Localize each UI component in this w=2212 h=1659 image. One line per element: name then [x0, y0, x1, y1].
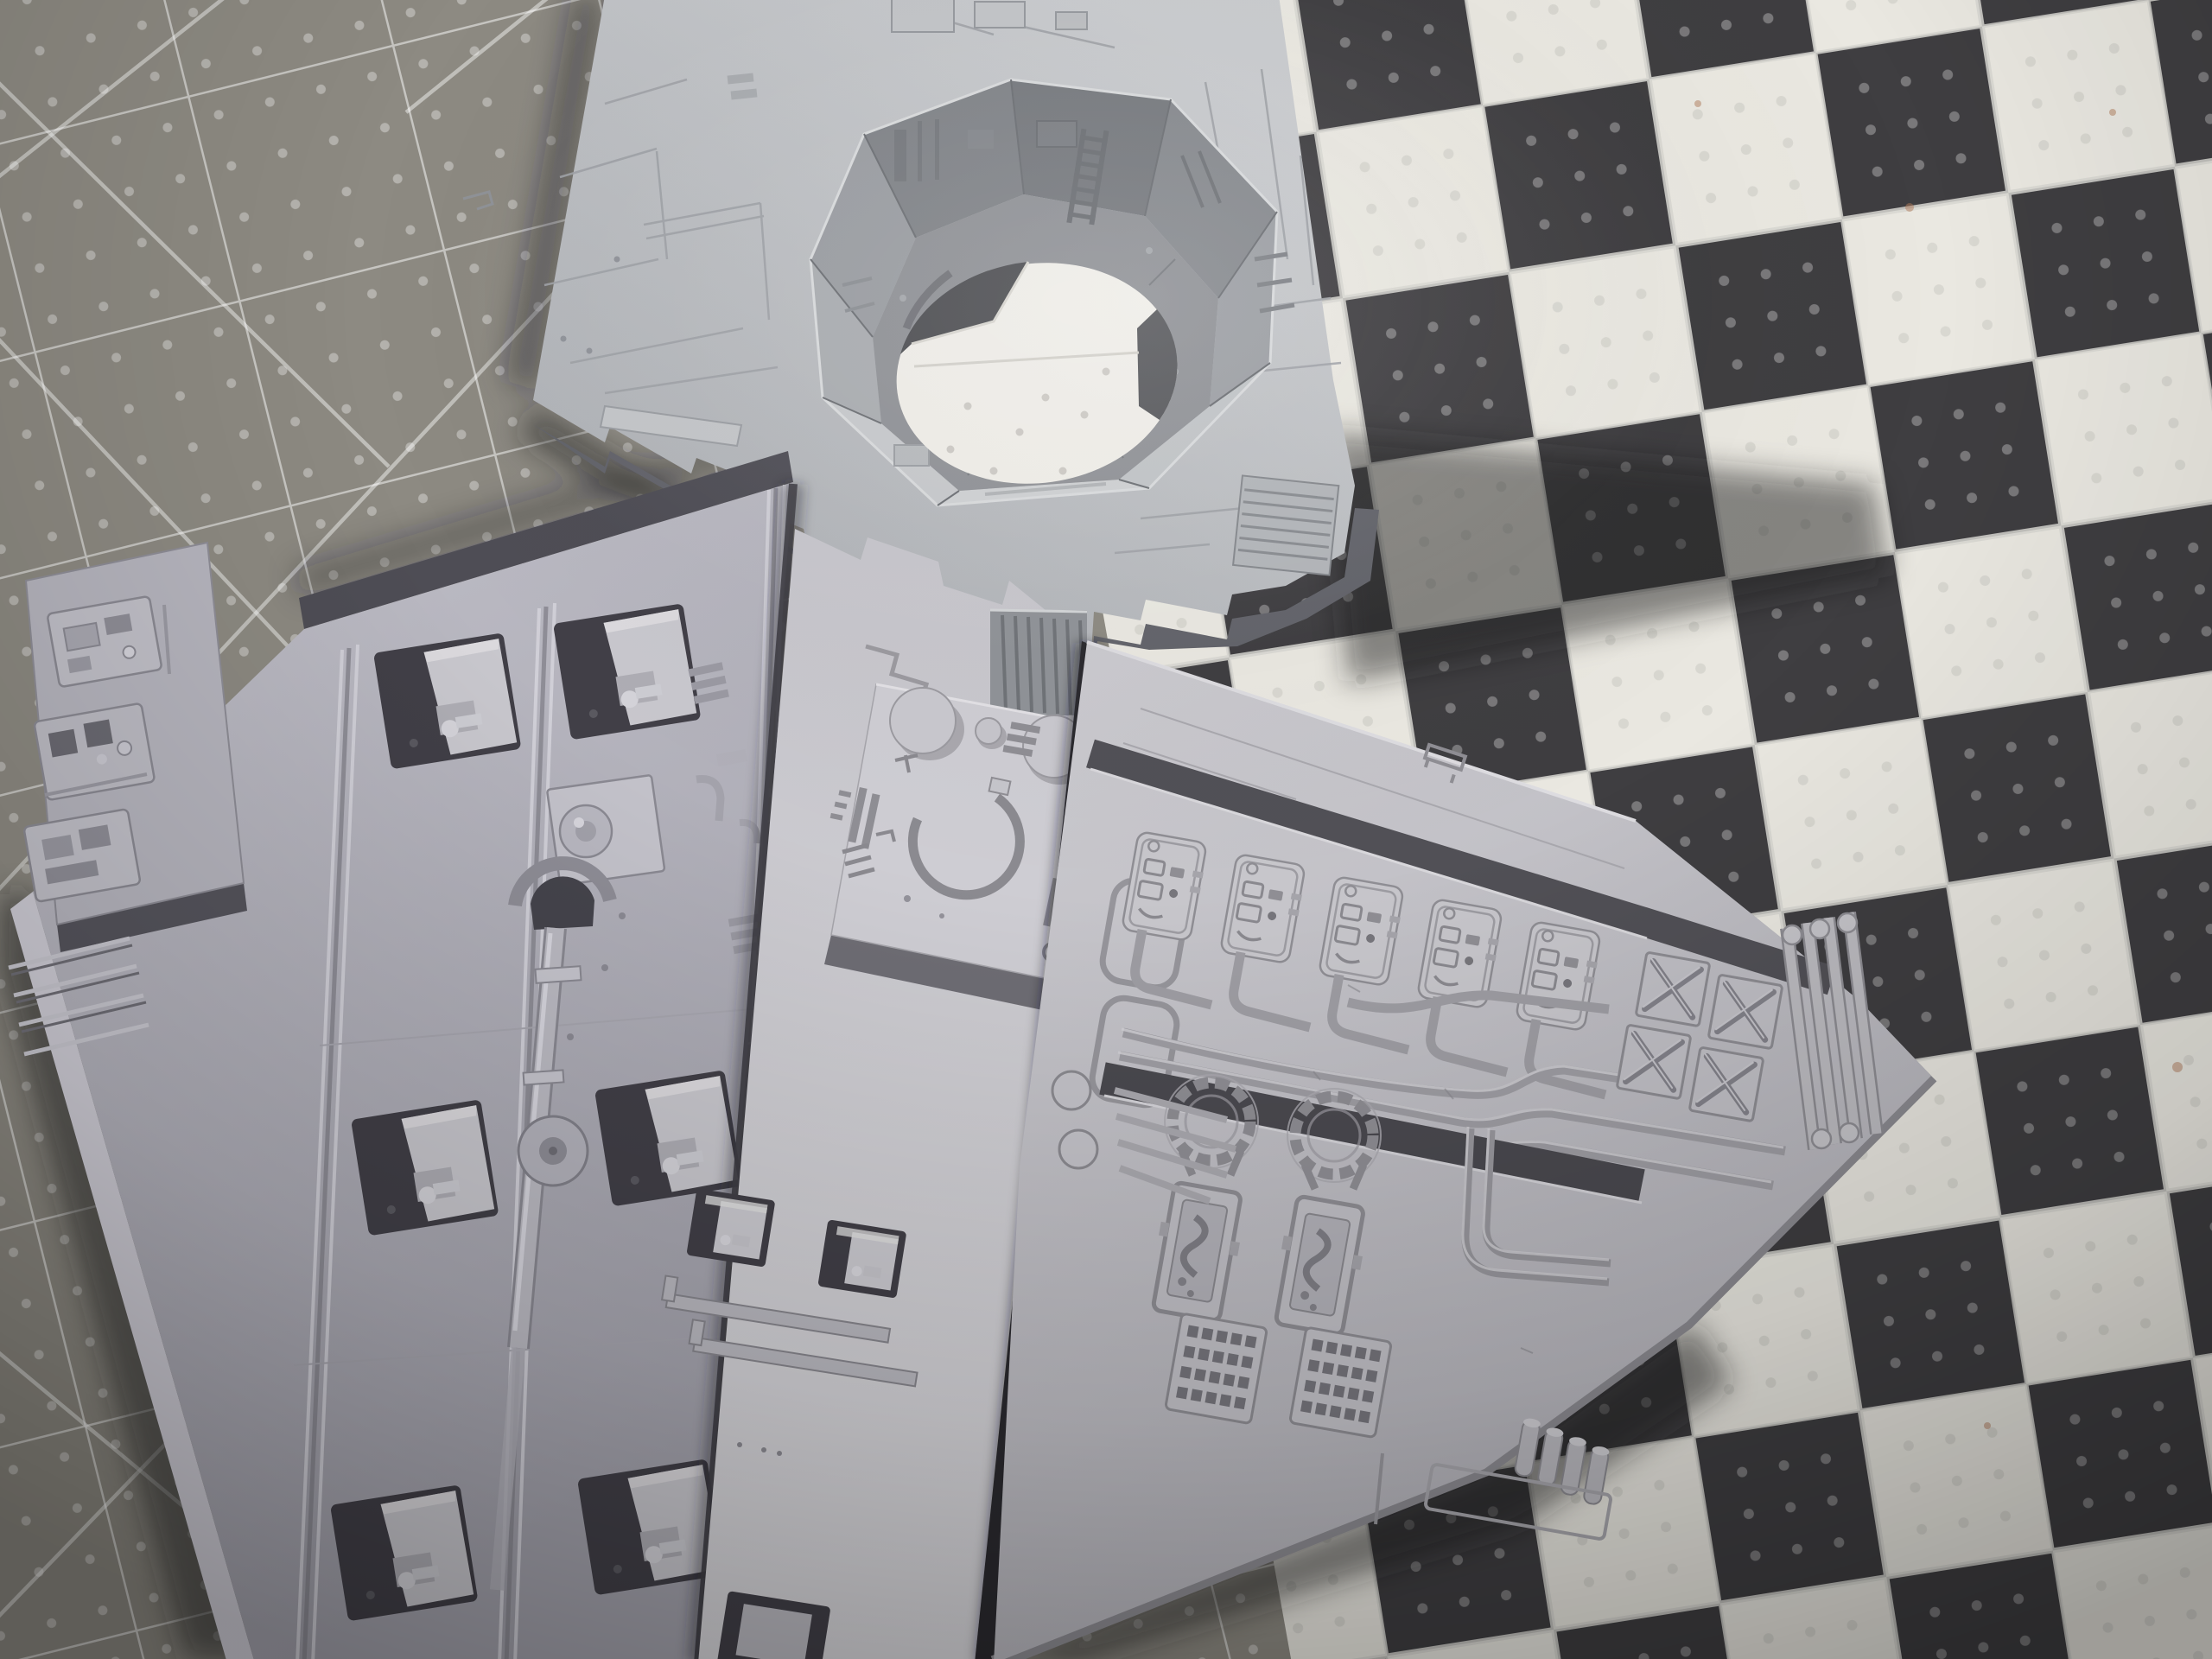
vignette — [0, 0, 2212, 1659]
scene: Grey sci-fi model kit panels on cutting … — [0, 0, 2212, 1659]
photo-stage: Grey sci-fi model kit panels on cutting … — [0, 0, 2212, 1659]
